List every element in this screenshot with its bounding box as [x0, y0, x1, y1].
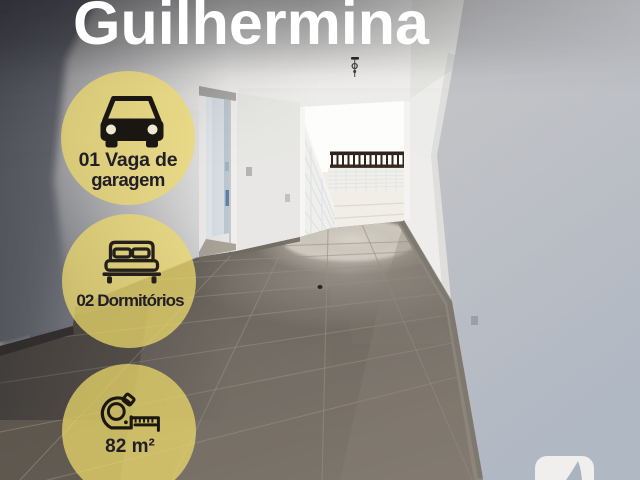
- svg-text:02 Dormitórios: 02 Dormitórios: [76, 291, 184, 310]
- svg-text:82 m²: 82 m²: [105, 436, 155, 457]
- svg-text:01 Vaga de: 01 Vaga de: [79, 149, 178, 171]
- svg-text:garagem: garagem: [91, 169, 165, 190]
- svg-text:Guilhermina: Guilhermina: [73, 0, 430, 57]
